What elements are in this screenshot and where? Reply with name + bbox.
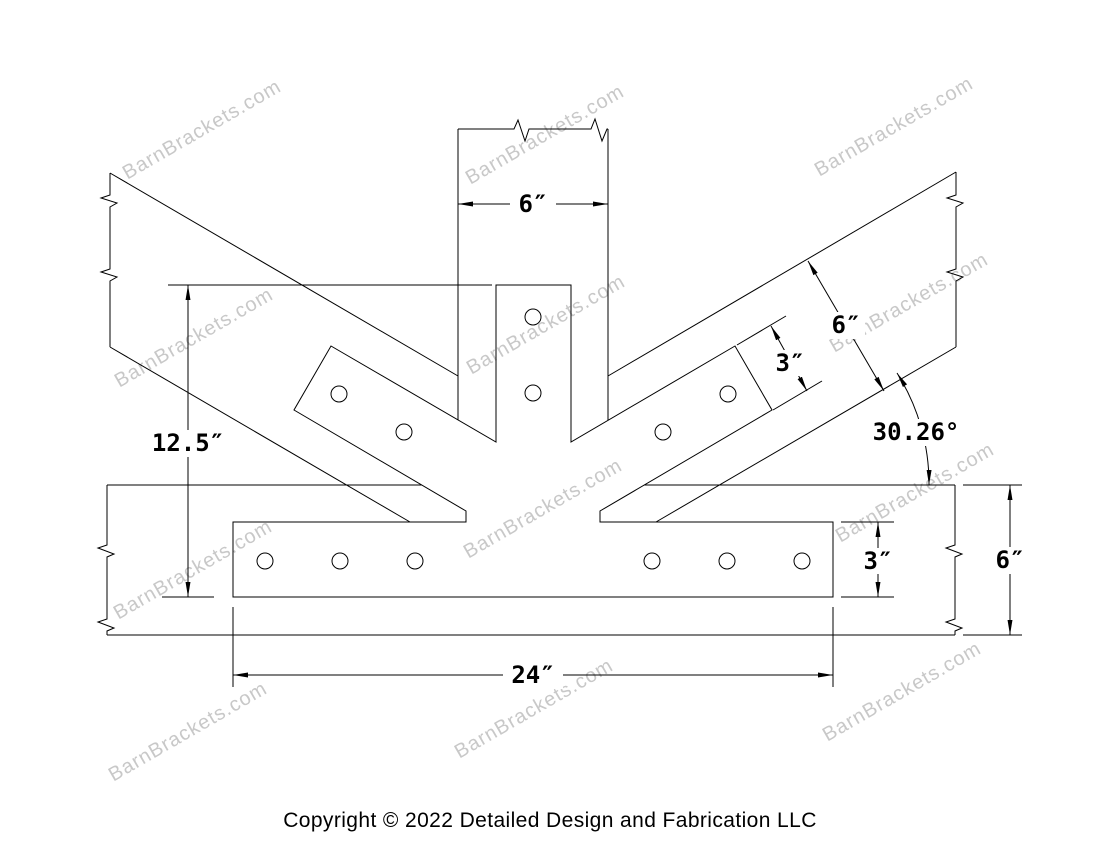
bolt-hole (525, 385, 541, 401)
left-rafter-end-break-line (101, 173, 117, 347)
bolt-hole (407, 553, 423, 569)
dim-label-post-width: 6″ (519, 190, 548, 218)
dim-plate-width: 24″ (233, 607, 833, 689)
watermark: BarnBrackets.com (462, 80, 628, 189)
dim-label-bracket-height: 12.5″ (152, 429, 224, 457)
dim-arm-width: 3″ (737, 316, 822, 410)
copyright-text: Copyright © 2022 Detailed Design and Fab… (283, 809, 817, 832)
bolt-hole (525, 309, 541, 325)
dim-label-rafter-angle: 30.26° (873, 418, 960, 446)
watermark: BarnBrackets.com (105, 677, 271, 786)
bolt-hole (720, 386, 736, 402)
beam-right-end-break-line (946, 485, 962, 635)
watermark: BarnBrackets.com (110, 515, 276, 624)
watermark: BarnBrackets.com (463, 270, 629, 379)
dim-label-rafter-width: 6″ (832, 311, 861, 339)
dim-label-beam-height: 6″ (996, 546, 1025, 574)
watermark: BarnBrackets.com (111, 283, 277, 392)
bolt-hole (719, 553, 735, 569)
bolt-hole (794, 553, 810, 569)
dim-beam-height: 6″ (963, 485, 1029, 635)
dim-label-plate-height: 3″ (864, 547, 893, 575)
dim-post-width: 6″ (458, 190, 608, 218)
bolt-hole (396, 424, 412, 440)
watermark: BarnBrackets.com (811, 72, 977, 181)
dim-label-arm-width: 3″ (776, 349, 805, 377)
drawing-canvas: BarnBrackets.com BarnBrackets.com BarnBr… (0, 0, 1100, 850)
bolt-hole (655, 424, 671, 440)
bolt-holes (257, 309, 810, 569)
watermark: BarnBrackets.com (832, 438, 998, 547)
dim-label-plate-width: 24″ (511, 661, 554, 689)
bolt-hole (332, 553, 348, 569)
watermark: BarnBrackets.com (460, 454, 626, 563)
watermark: BarnBrackets.com (826, 248, 992, 357)
bolt-hole (331, 386, 347, 402)
bolt-hole (644, 553, 660, 569)
drawing-page: BarnBrackets.com BarnBrackets.com BarnBr… (0, 0, 1100, 850)
dimensions: 6″ 12.5″ 3″ 6″ 30.26° (150, 190, 1029, 689)
beam-left-end-break-line (98, 485, 114, 635)
bolt-hole (257, 553, 273, 569)
watermark: BarnBrackets.com (119, 75, 285, 184)
watermark: BarnBrackets.com (819, 637, 985, 746)
